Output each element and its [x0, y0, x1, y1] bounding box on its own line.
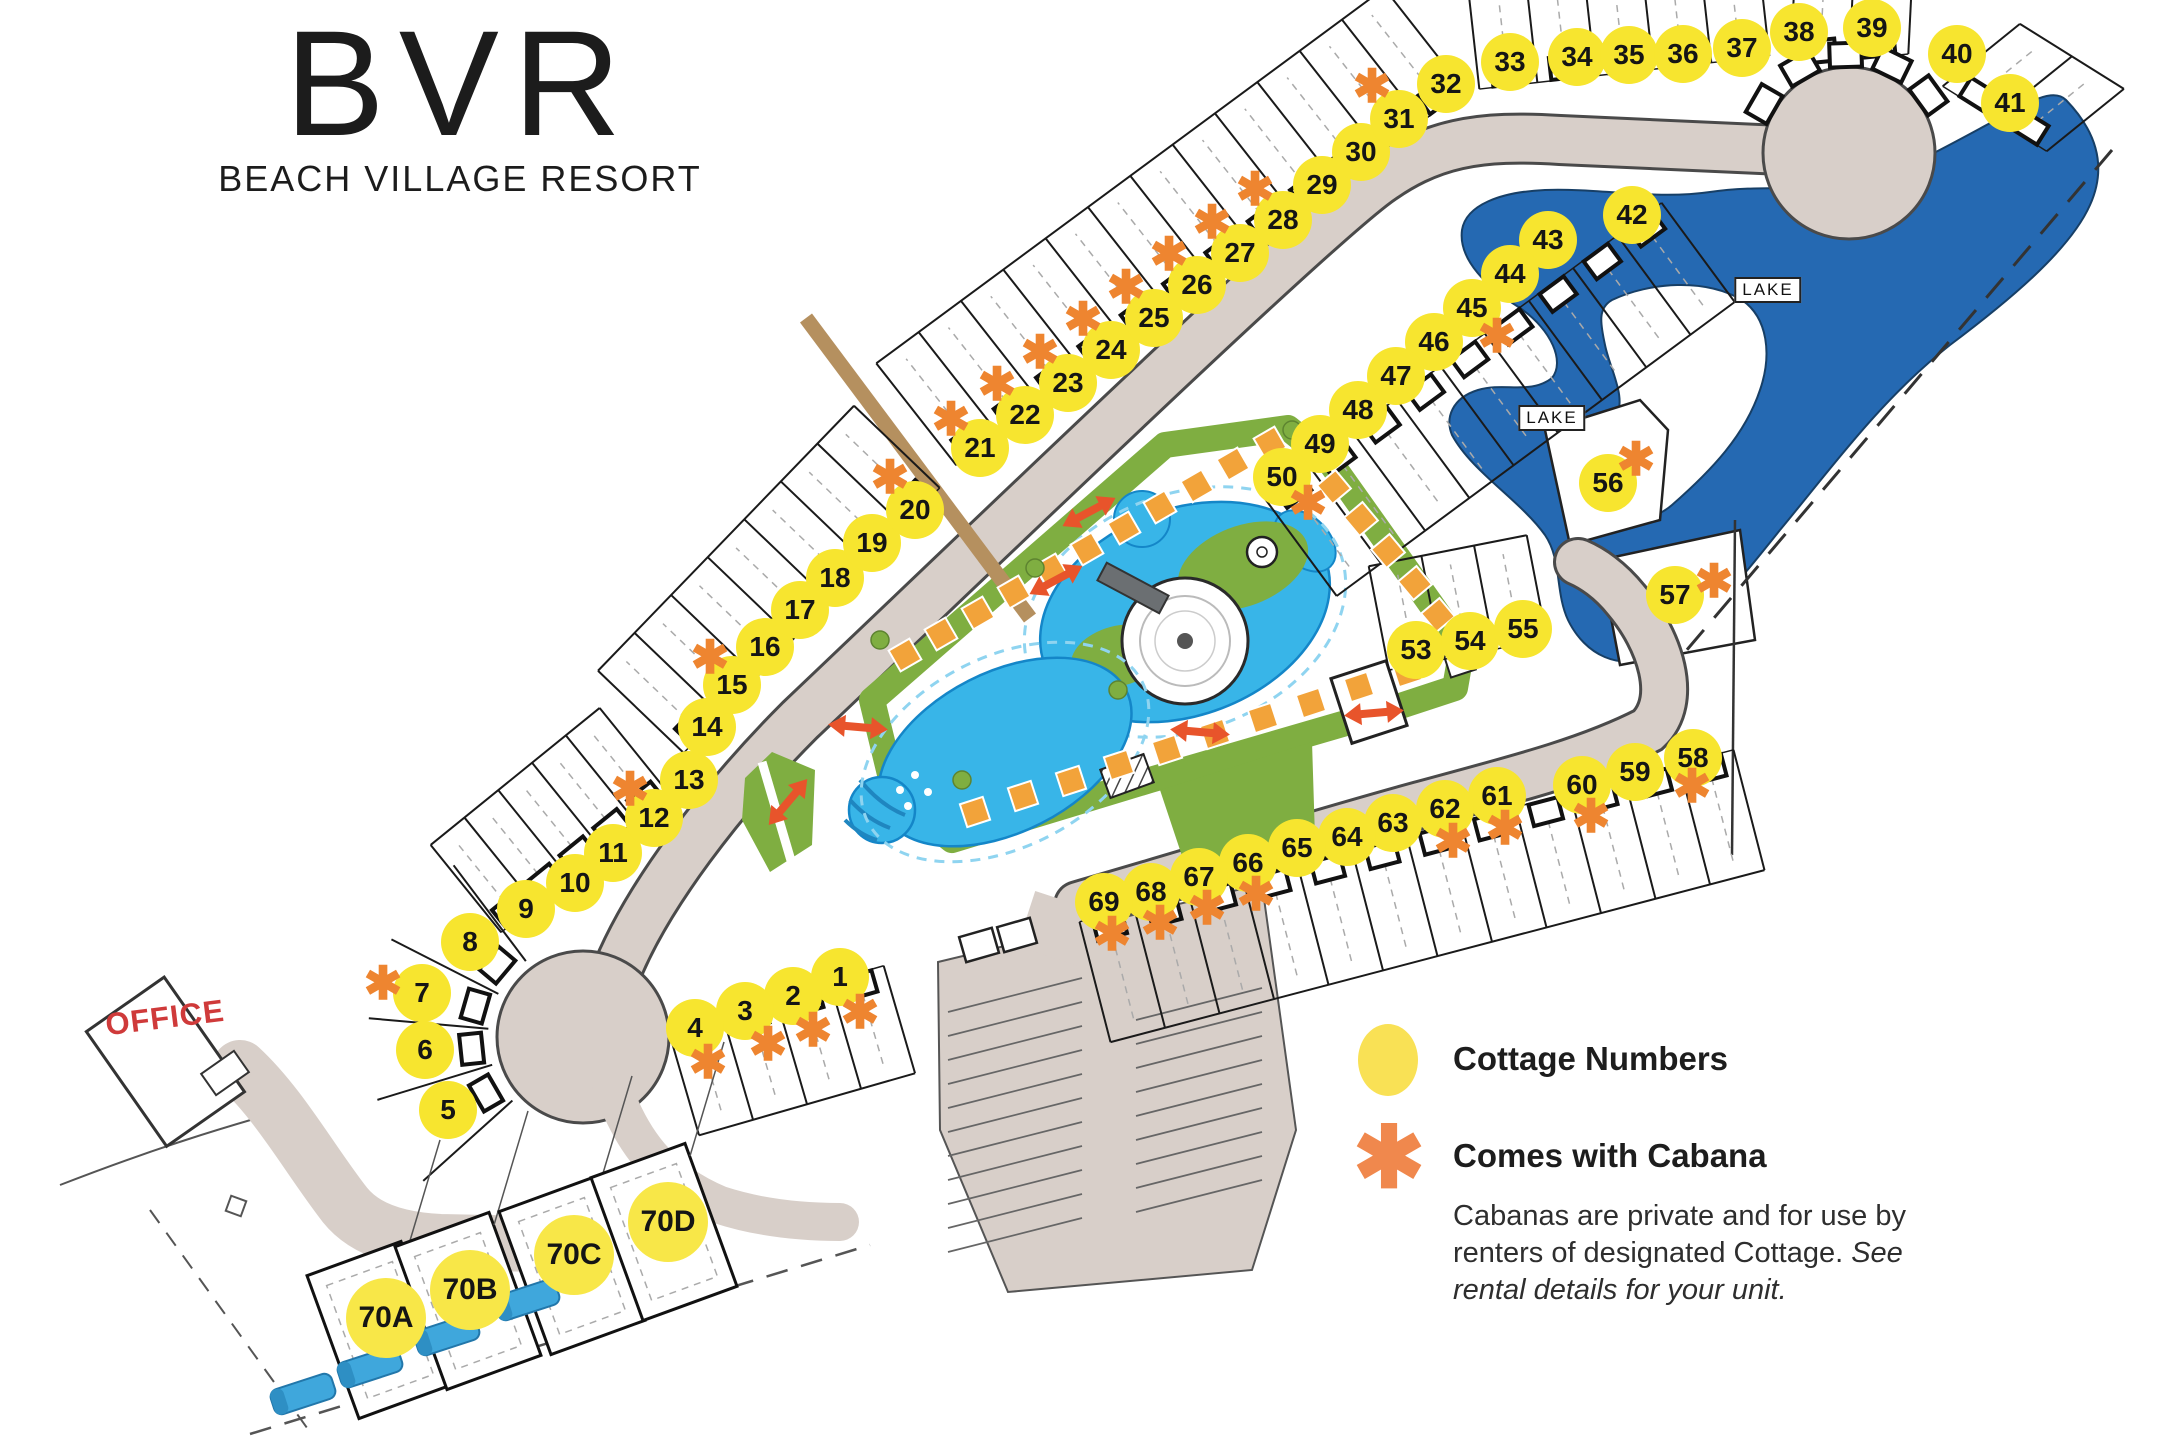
cottage-marker-5: 5 [419, 1081, 477, 1139]
cabana-asterisk-2: ✱ [794, 1007, 833, 1053]
legend-cabana-label: Comes with Cabana [1453, 1137, 1767, 1175]
legend-cottage-label: Cottage Numbers [1453, 1040, 1728, 1078]
cabana-asterisk-66: ✱ [1237, 871, 1276, 917]
cabana-asterisk-56: ✱ [1617, 436, 1656, 482]
cabana-asterisk-45: ✱ [1478, 313, 1517, 359]
legend-cottage-icon [1358, 1024, 1418, 1096]
cottage-marker-65: 65 [1268, 819, 1326, 877]
cabana-asterisk-1: ✱ [841, 989, 880, 1035]
cabana-asterisk-15: ✱ [691, 634, 730, 680]
cottage-marker-70C: 70C [534, 1215, 614, 1295]
cabana-asterisk-67: ✱ [1188, 885, 1227, 931]
cottage-marker-33: 33 [1481, 33, 1539, 91]
cabana-asterisk-61: ✱ [1486, 805, 1525, 851]
cabana-asterisk-27: ✱ [1193, 199, 1232, 245]
cabana-asterisk-4: ✱ [689, 1039, 728, 1085]
lake-label-1: LAKE [1734, 277, 1801, 303]
cabana-asterisk-60: ✱ [1572, 793, 1611, 839]
logo-name: BEACH VILLAGE RESORT [200, 158, 720, 200]
lake-label-2: LAKE [1518, 405, 1585, 431]
cottage-marker-59: 59 [1606, 743, 1664, 801]
logo-abbr: BVR [200, 8, 720, 158]
cabana-asterisk-26: ✱ [1150, 231, 1189, 277]
cabana-asterisk-7: ✱ [364, 960, 403, 1006]
cottage-marker-38: 38 [1770, 3, 1828, 61]
cottage-marker-53: 53 [1387, 621, 1445, 679]
cabana-asterisk-57: ✱ [1695, 558, 1734, 604]
cabana-asterisk-68: ✱ [1141, 900, 1180, 946]
cottage-marker-32: 32 [1417, 55, 1475, 113]
cabana-asterisk-22: ✱ [978, 361, 1017, 407]
cottage-marker-54: 54 [1441, 612, 1499, 670]
cottage-marker-70A: 70A [346, 1278, 426, 1358]
cottage-marker-34: 34 [1548, 28, 1606, 86]
legend-note-normal: Cabanas are private and for use by rente… [1453, 1200, 1906, 1269]
cottage-marker-70D: 70D [628, 1182, 708, 1262]
cottage-marker-41: 41 [1981, 74, 2039, 132]
slide-tower [1247, 537, 1277, 567]
cottage-marker-42: 42 [1603, 186, 1661, 244]
cabana-asterisk-24: ✱ [1064, 296, 1103, 342]
cottage-marker-35: 35 [1600, 26, 1658, 84]
resort-site-map: BVR BEACH VILLAGE RESORT OFFICE 1✱2✱3✱4✱… [0, 0, 2160, 1440]
cabana-asterisk-31: ✱ [1353, 63, 1392, 109]
cabana-asterisk-3: ✱ [749, 1021, 788, 1067]
cabana-asterisk-28: ✱ [1236, 166, 1275, 212]
cottage-marker-40: 40 [1928, 25, 1986, 83]
cottage-marker-39: 39 [1843, 0, 1901, 57]
cottage-marker-37: 37 [1713, 19, 1771, 77]
cottage-marker-55: 55 [1494, 600, 1552, 658]
cottage-marker-36: 36 [1654, 25, 1712, 83]
cottage-marker-64: 64 [1318, 808, 1376, 866]
cottage-marker-8: 8 [441, 913, 499, 971]
cabana-asterisk-50: ✱ [1289, 480, 1328, 526]
legend-note: Cabanas are private and for use by rente… [1453, 1198, 1953, 1308]
cabana-asterisk-21: ✱ [932, 396, 971, 442]
legend-cabana-icon: ✱ [1353, 1115, 1425, 1201]
cabana-asterisk-25: ✱ [1107, 264, 1146, 310]
cabana-asterisk-69: ✱ [1093, 911, 1132, 957]
cottage-marker-70B: 70B [430, 1250, 510, 1330]
cabana-asterisk-23: ✱ [1021, 329, 1060, 375]
cabana-asterisk-58: ✱ [1673, 763, 1712, 809]
cabana-asterisk-12: ✱ [611, 766, 650, 812]
cottage-marker-6: 6 [396, 1021, 454, 1079]
cabana-asterisk-62: ✱ [1434, 818, 1473, 864]
cabana-asterisk-20: ✱ [871, 454, 910, 500]
cottage-marker-13: 13 [660, 751, 718, 809]
resort-logo: BVR BEACH VILLAGE RESORT [200, 8, 720, 200]
